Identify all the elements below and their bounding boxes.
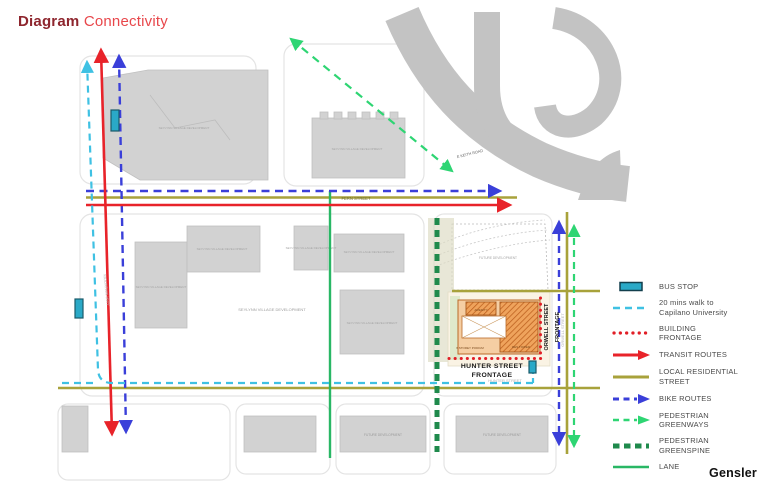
svg-text:SEYLYNN VILLAGE DEVELOPMENT: SEYLYNN VILLAGE DEVELOPMENT	[332, 147, 383, 151]
bus-stop-marker	[529, 361, 536, 373]
bus-stop-marker	[75, 299, 83, 318]
gensler-logo: Gensler	[709, 466, 757, 480]
svg-text:SEYLYNN VILLAGE DEVELOPMENT: SEYLYNN VILLAGE DEVELOPMENT	[347, 321, 398, 325]
legend-item-building-frontage: BUILDING FRONTAGE	[612, 324, 768, 344]
connectivity-diagram-page: E KEITH ROAD	[0, 0, 768, 497]
bus-stop-marker	[111, 110, 119, 131]
svg-text:SEYLYNN VILLAGE DEVELOPMENT: SEYLYNN VILLAGE DEVELOPMENT	[136, 285, 187, 289]
legend-item-local-residential: LOCAL RESIDENTIAL STREET	[612, 367, 768, 387]
legend-label: STREET	[659, 377, 738, 387]
legend-label: LANE	[659, 462, 679, 471]
area-label-future: FUTURE DEVELOPMENT	[364, 433, 402, 437]
highway-interchange: E KEITH ROAD	[402, 12, 628, 200]
site-label-tower: RES TOWER	[512, 345, 531, 349]
svg-text:SEYLYNN VILLAGE DEVELOPMENT: SEYLYNN VILLAGE DEVELOPMENT	[159, 126, 210, 130]
legend-item-capilano-walk: 20 mins walk to Capilano University	[612, 298, 768, 318]
legend-label: BIKE ROUTES	[659, 394, 712, 403]
page-title: Diagram Connectivity	[18, 13, 168, 30]
legend-item-bike-routes: BIKE ROUTES	[612, 393, 768, 405]
hunter-frontage-label: FRONTAGE	[472, 372, 513, 379]
legend-label: FRONTAGE	[659, 333, 702, 343]
area-label-seylynn: SEYLYNN VILLAGE DEVELOPMENT	[238, 307, 306, 312]
lane-icon	[612, 462, 650, 472]
legend-item-pedestrian-greenways: PEDESTRIAN GREENWAYS	[612, 411, 768, 431]
svg-text:SEYLYNN VILLAGE DEVELOPMENT: SEYLYNN VILLAGE DEVELOPMENT	[344, 250, 395, 254]
building	[62, 406, 88, 452]
residential-street-icon	[612, 372, 650, 382]
area-label-future: FUTURE DEVELOPMENT	[479, 256, 517, 260]
orwell-frontage-label: ORWELL STREET	[544, 303, 550, 350]
legend-label: LOCAL RESIDENTIAL	[659, 367, 738, 377]
orwell-frontage-label: FRONTAGE	[555, 311, 561, 342]
site-courtyard	[462, 316, 506, 338]
legend-label: TRANSIT ROUTES	[659, 350, 727, 359]
development-site: AMENITY 6 STOREY PODIUM RES TOWER	[448, 292, 550, 366]
bus-stop-icon	[612, 281, 650, 292]
building	[103, 70, 268, 180]
legend-item-pedestrian-greenspine: PEDESTRIAN GREENSPINE	[612, 436, 768, 456]
site-label-podium: 6 STOREY PODIUM	[456, 346, 484, 350]
legend-label: 20 mins walk to	[659, 298, 727, 308]
transit-arrow-icon	[612, 349, 650, 361]
bike-arrow-icon	[612, 393, 650, 405]
legend-label: GREENSPINE	[659, 446, 710, 456]
street-label-keith: E KEITH ROAD	[457, 149, 484, 159]
legend-label: Capilano University	[659, 308, 727, 318]
street-label-fern: FERN STREET	[341, 196, 371, 201]
street-label-mountain-hwy: MOUNTAIN HWY	[102, 274, 110, 306]
greenway-arrow-icon	[612, 414, 650, 426]
area-label-future: FUTURE DEVELOPMENT	[483, 433, 521, 437]
greenspine-icon	[612, 441, 650, 451]
legend-label: PEDESTRIAN	[659, 411, 709, 421]
title-word-connectivity: Connectivity	[84, 13, 168, 30]
frontage-dots-icon	[612, 328, 650, 338]
legend-label: GREENWAYS	[659, 420, 709, 430]
walk-route-icon	[612, 303, 650, 313]
legend: BUS STOP 20 mins walk to Capilano Univer…	[612, 281, 768, 478]
legend-label: BUS STOP	[659, 282, 698, 291]
legend-label: PEDESTRIAN	[659, 436, 710, 446]
building	[244, 416, 316, 452]
site-label-amenity: AMENITY	[474, 308, 487, 312]
legend-item-transit-routes: TRANSIT ROUTES	[612, 349, 768, 361]
hunter-frontage-label: HUNTER STREET	[461, 363, 524, 370]
legend-item-bus-stop: BUS STOP	[612, 281, 768, 292]
legend-label: BUILDING	[659, 324, 702, 334]
svg-text:SEYLYNN VILLAGE DEVELOPMENT: SEYLYNN VILLAGE DEVELOPMENT	[197, 247, 248, 251]
title-word-diagram: Diagram	[18, 13, 79, 30]
